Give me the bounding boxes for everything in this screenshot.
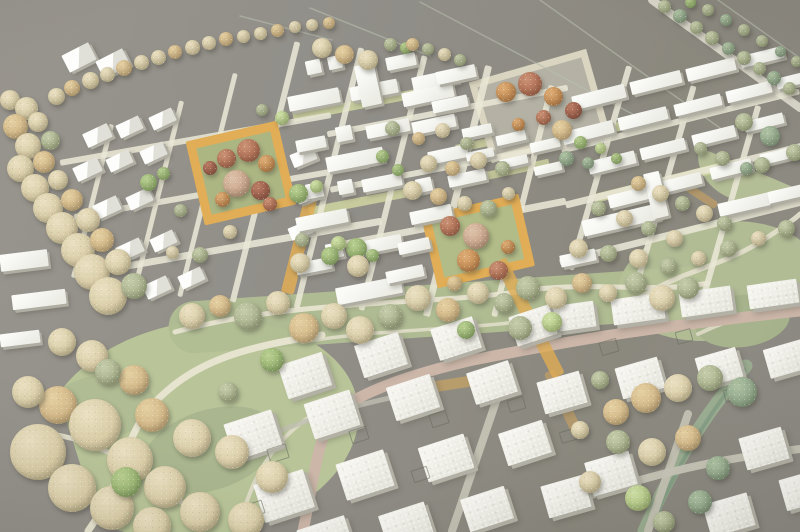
model-tree — [501, 240, 515, 254]
model-tree — [600, 245, 617, 262]
model-tree — [457, 196, 472, 211]
model-tree — [653, 511, 675, 532]
model-tree — [215, 435, 249, 469]
model-tree — [385, 121, 400, 136]
model-tree — [168, 45, 182, 59]
model-tree — [420, 155, 437, 172]
model-tree — [673, 9, 687, 23]
model-tree — [603, 399, 629, 425]
model-tree — [706, 456, 730, 480]
model-tree — [720, 240, 737, 257]
model-tree — [438, 48, 451, 61]
model-tree — [685, 0, 696, 8]
model-tree — [675, 196, 690, 211]
model-tree — [440, 216, 460, 236]
model-tree — [702, 4, 714, 16]
model-tree — [467, 282, 489, 304]
model-tree — [512, 118, 525, 131]
model-tree — [289, 313, 319, 343]
model-tree — [254, 27, 267, 40]
model-tree — [335, 45, 354, 64]
model-tree — [756, 35, 768, 47]
model-tree — [157, 167, 170, 180]
model-tree — [599, 284, 617, 302]
model-tree — [737, 51, 751, 65]
model-tree — [111, 467, 141, 497]
model-tree — [518, 72, 542, 96]
model-tree — [445, 161, 460, 176]
model-tree — [436, 298, 460, 322]
model-tree — [595, 143, 606, 154]
model-tree — [64, 80, 80, 96]
model-tree — [295, 233, 309, 247]
model-tree — [28, 112, 48, 132]
model-tree — [611, 153, 622, 164]
model-tree — [720, 14, 732, 26]
model-tree — [179, 303, 205, 329]
model-tree — [677, 277, 699, 299]
model-tree — [559, 151, 574, 166]
model-tree — [215, 192, 230, 207]
model-tree — [378, 304, 402, 328]
model-tree — [625, 485, 651, 511]
building-tower — [335, 125, 354, 143]
model-tree — [95, 359, 121, 385]
model-tree — [463, 223, 489, 249]
model-tree — [496, 82, 516, 102]
model-tree — [579, 471, 601, 493]
model-tree — [41, 131, 60, 150]
model-tree — [33, 151, 55, 173]
model-tree — [151, 50, 166, 65]
model-tree — [722, 42, 735, 55]
model-tree — [690, 21, 703, 34]
model-tree — [791, 56, 800, 67]
model-tree — [192, 247, 208, 263]
model-tree — [48, 88, 65, 105]
model-tree — [144, 466, 186, 508]
model-tree — [494, 293, 514, 313]
model-tree — [697, 365, 723, 391]
model-tree — [306, 19, 318, 31]
model-tree — [775, 46, 786, 57]
model-tree — [202, 36, 216, 50]
model-tree — [412, 132, 425, 145]
model-tree — [572, 273, 592, 293]
model-tree — [105, 249, 131, 275]
model-tree — [217, 149, 236, 168]
model-tree — [289, 184, 308, 203]
model-tree — [753, 62, 766, 75]
model-tree — [536, 110, 551, 125]
model-tree — [406, 38, 419, 51]
model-tree — [275, 111, 289, 125]
model-tree — [166, 246, 179, 259]
model-tree — [694, 142, 707, 155]
model-tree — [180, 492, 220, 532]
model-tree — [48, 464, 96, 512]
model-tree — [256, 104, 268, 116]
model-tree — [489, 261, 508, 280]
model-tree — [234, 302, 262, 330]
model-tree — [740, 162, 753, 175]
model-tree — [384, 38, 397, 51]
model-tree — [135, 398, 169, 432]
model-tree — [591, 201, 606, 216]
model-tree — [691, 251, 706, 266]
model-tree — [321, 303, 347, 329]
model-tree — [358, 50, 378, 70]
model-tree — [90, 228, 114, 252]
model-tree — [376, 150, 389, 163]
building-tower — [337, 179, 354, 196]
model-tree — [591, 371, 609, 389]
model-tree — [666, 230, 683, 247]
model-tree — [218, 382, 238, 402]
model-tree — [405, 285, 431, 311]
model-tree — [258, 155, 275, 172]
model-tree — [545, 287, 567, 309]
model-tree — [100, 67, 115, 82]
model-tree — [312, 38, 332, 58]
model-tree — [403, 181, 422, 200]
model-tree — [289, 21, 301, 33]
model-tree — [571, 421, 589, 439]
model-tree — [652, 185, 669, 202]
model-tree — [185, 40, 200, 55]
model-tree — [223, 225, 237, 239]
model-tree — [346, 316, 374, 344]
model-tree — [786, 144, 800, 161]
model-tree — [61, 189, 83, 211]
model-tree — [631, 383, 661, 413]
model-tree — [256, 461, 288, 493]
model-tree — [48, 170, 68, 190]
model-tree — [778, 220, 795, 237]
model-tree — [516, 276, 540, 300]
model-tree — [502, 187, 515, 200]
model-tree — [447, 276, 462, 291]
model-tree — [660, 258, 677, 275]
model-tree — [237, 139, 260, 162]
model-tree — [495, 161, 510, 176]
model-tree — [735, 113, 753, 131]
model-tree — [457, 321, 475, 339]
model-tree — [430, 188, 447, 205]
model-tree — [629, 249, 648, 268]
model-tree — [783, 82, 796, 95]
model-tree — [727, 377, 757, 407]
model-tree — [203, 161, 217, 175]
model-tree — [48, 328, 76, 356]
model-tree — [688, 490, 712, 514]
model-tree — [582, 157, 594, 169]
model-tree — [638, 438, 666, 466]
model-tree — [140, 174, 157, 191]
model-tree — [717, 216, 732, 231]
model-tree — [508, 316, 532, 340]
model-tree — [696, 205, 713, 222]
model-tree — [641, 221, 656, 236]
model-tree — [760, 126, 780, 146]
model-tree — [754, 157, 770, 173]
model-tree — [552, 120, 572, 140]
model-tree — [715, 151, 730, 166]
model-tree — [664, 374, 692, 402]
model-tree — [174, 204, 187, 217]
model-tree — [323, 17, 335, 29]
model-tree — [606, 430, 630, 454]
model-tree — [310, 180, 323, 193]
model-tree — [565, 102, 582, 119]
model-tree — [119, 365, 149, 395]
model-tree — [121, 273, 147, 299]
model-tree — [569, 239, 588, 258]
model-tree — [422, 43, 434, 55]
model-photo — [0, 0, 800, 532]
model-tree — [616, 210, 633, 227]
model-tree — [347, 255, 369, 277]
model-tree — [271, 24, 284, 37]
model-tree — [542, 312, 562, 332]
model-tree — [82, 72, 99, 89]
model-tree — [116, 60, 132, 76]
model-tree — [544, 87, 563, 106]
model-tree — [480, 200, 497, 217]
model-tree — [12, 376, 44, 408]
model-tree — [321, 247, 339, 265]
model-tree — [209, 295, 231, 317]
model-tree — [290, 253, 310, 273]
model-tree — [767, 71, 781, 85]
model-tree — [470, 152, 487, 169]
model-tree — [574, 136, 587, 149]
model-tree — [457, 249, 480, 272]
model-tree — [675, 425, 701, 451]
model-tree — [454, 54, 466, 66]
model-tree — [649, 285, 675, 311]
model-tree — [705, 31, 719, 45]
model-tree — [260, 348, 284, 372]
model-tree — [625, 272, 647, 294]
model-tree — [658, 0, 671, 13]
model-tree — [134, 55, 149, 70]
model-tree — [460, 137, 473, 150]
model-tree — [219, 32, 233, 46]
model-tree — [228, 502, 264, 532]
model-tree — [173, 419, 211, 457]
model-tree — [392, 164, 404, 176]
model-tree — [263, 197, 277, 211]
model-tree — [266, 291, 290, 315]
model-tree — [631, 176, 646, 191]
model-tree — [751, 231, 766, 246]
model-tree — [435, 123, 450, 138]
model-tree — [738, 24, 750, 36]
model-tree — [237, 30, 250, 43]
